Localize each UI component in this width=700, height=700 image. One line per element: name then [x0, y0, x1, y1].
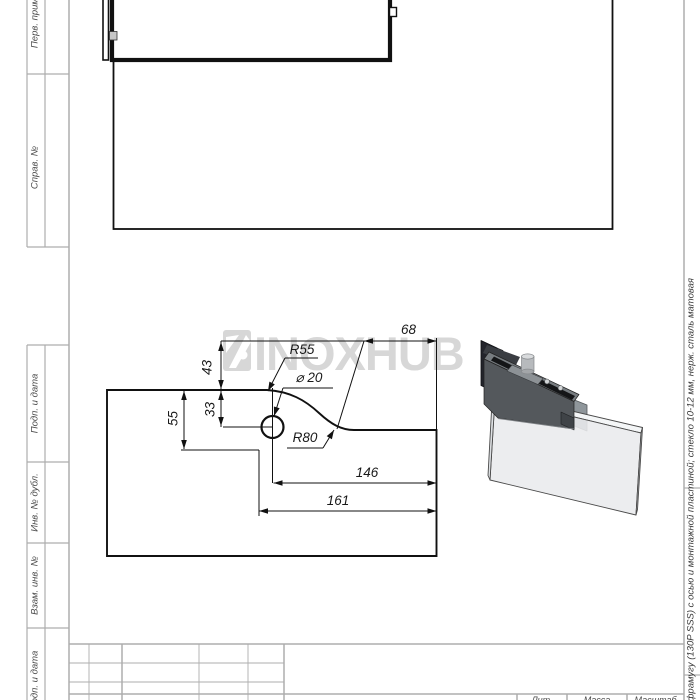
title-block-lit: Лит.	[517, 695, 567, 700]
title-block-masshtab: Масштаб	[627, 695, 684, 700]
dim-146: 146	[347, 465, 387, 480]
dim-r80: R80	[286, 430, 324, 445]
title-block-massa: Масса	[567, 695, 627, 700]
dim-r55: R55	[284, 342, 320, 357]
dim-68: 68	[386, 322, 431, 337]
dim-dia20: ⌀ 20	[288, 370, 330, 386]
margin-sprav-no: Справ. №	[30, 108, 43, 228]
drawing-sheet: INOXHUB	[0, 0, 700, 700]
labels-layer: 68 R55 ⌀ 20 43 33 55 R80 146 161 Перв. п…	[0, 0, 700, 700]
margin-podp-i-data-2: Подп. и дата	[30, 621, 43, 700]
side-note-text: фрамугу (130P SSS) с осью и монтажной пл…	[686, 302, 699, 700]
dim-43: 43	[200, 353, 215, 383]
margin-perv-primen: Перв. примен.	[30, 0, 43, 77]
dim-161: 161	[318, 493, 358, 508]
dim-33: 33	[203, 395, 218, 425]
dim-55: 55	[166, 404, 181, 434]
